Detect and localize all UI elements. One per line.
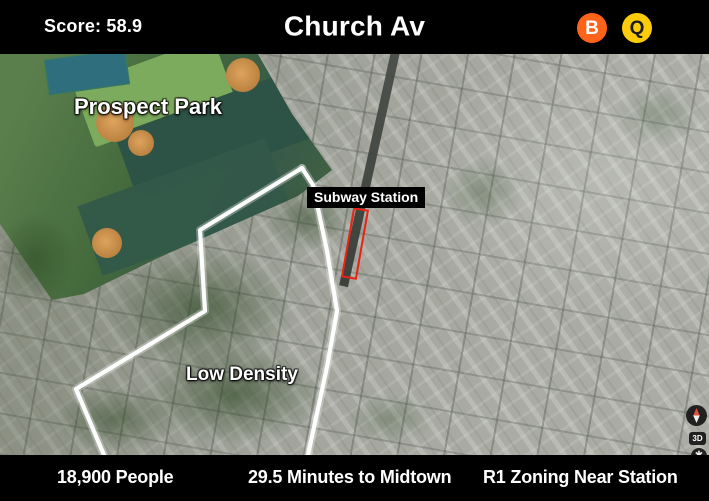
satellite-map[interactable]: Prospect Park Subway Station Low Density… (0, 54, 709, 455)
zoning-stat: R1 Zoning Near Station (483, 467, 678, 488)
commute-time-stat: 29.5 Minutes to Midtown (248, 467, 451, 488)
3d-toggle-button[interactable]: 3D (689, 432, 706, 445)
subway-line-b-badge: B (577, 13, 607, 43)
compass-icon[interactable] (686, 405, 707, 426)
stats-bar: 18,900 People 29.5 Minutes to Midtown R1… (0, 455, 709, 501)
park-label: Prospect Park (74, 94, 222, 120)
station-scorecard-app: Score: 58.9 Church Av B Q (0, 0, 709, 501)
subway-line-q-badge: Q (622, 13, 652, 43)
subway-station-label: Subway Station (307, 187, 425, 208)
header-bar: Score: 58.9 Church Av B Q (0, 0, 709, 54)
low-density-label: Low Density (186, 364, 298, 386)
population-stat: 18,900 People (57, 467, 173, 488)
